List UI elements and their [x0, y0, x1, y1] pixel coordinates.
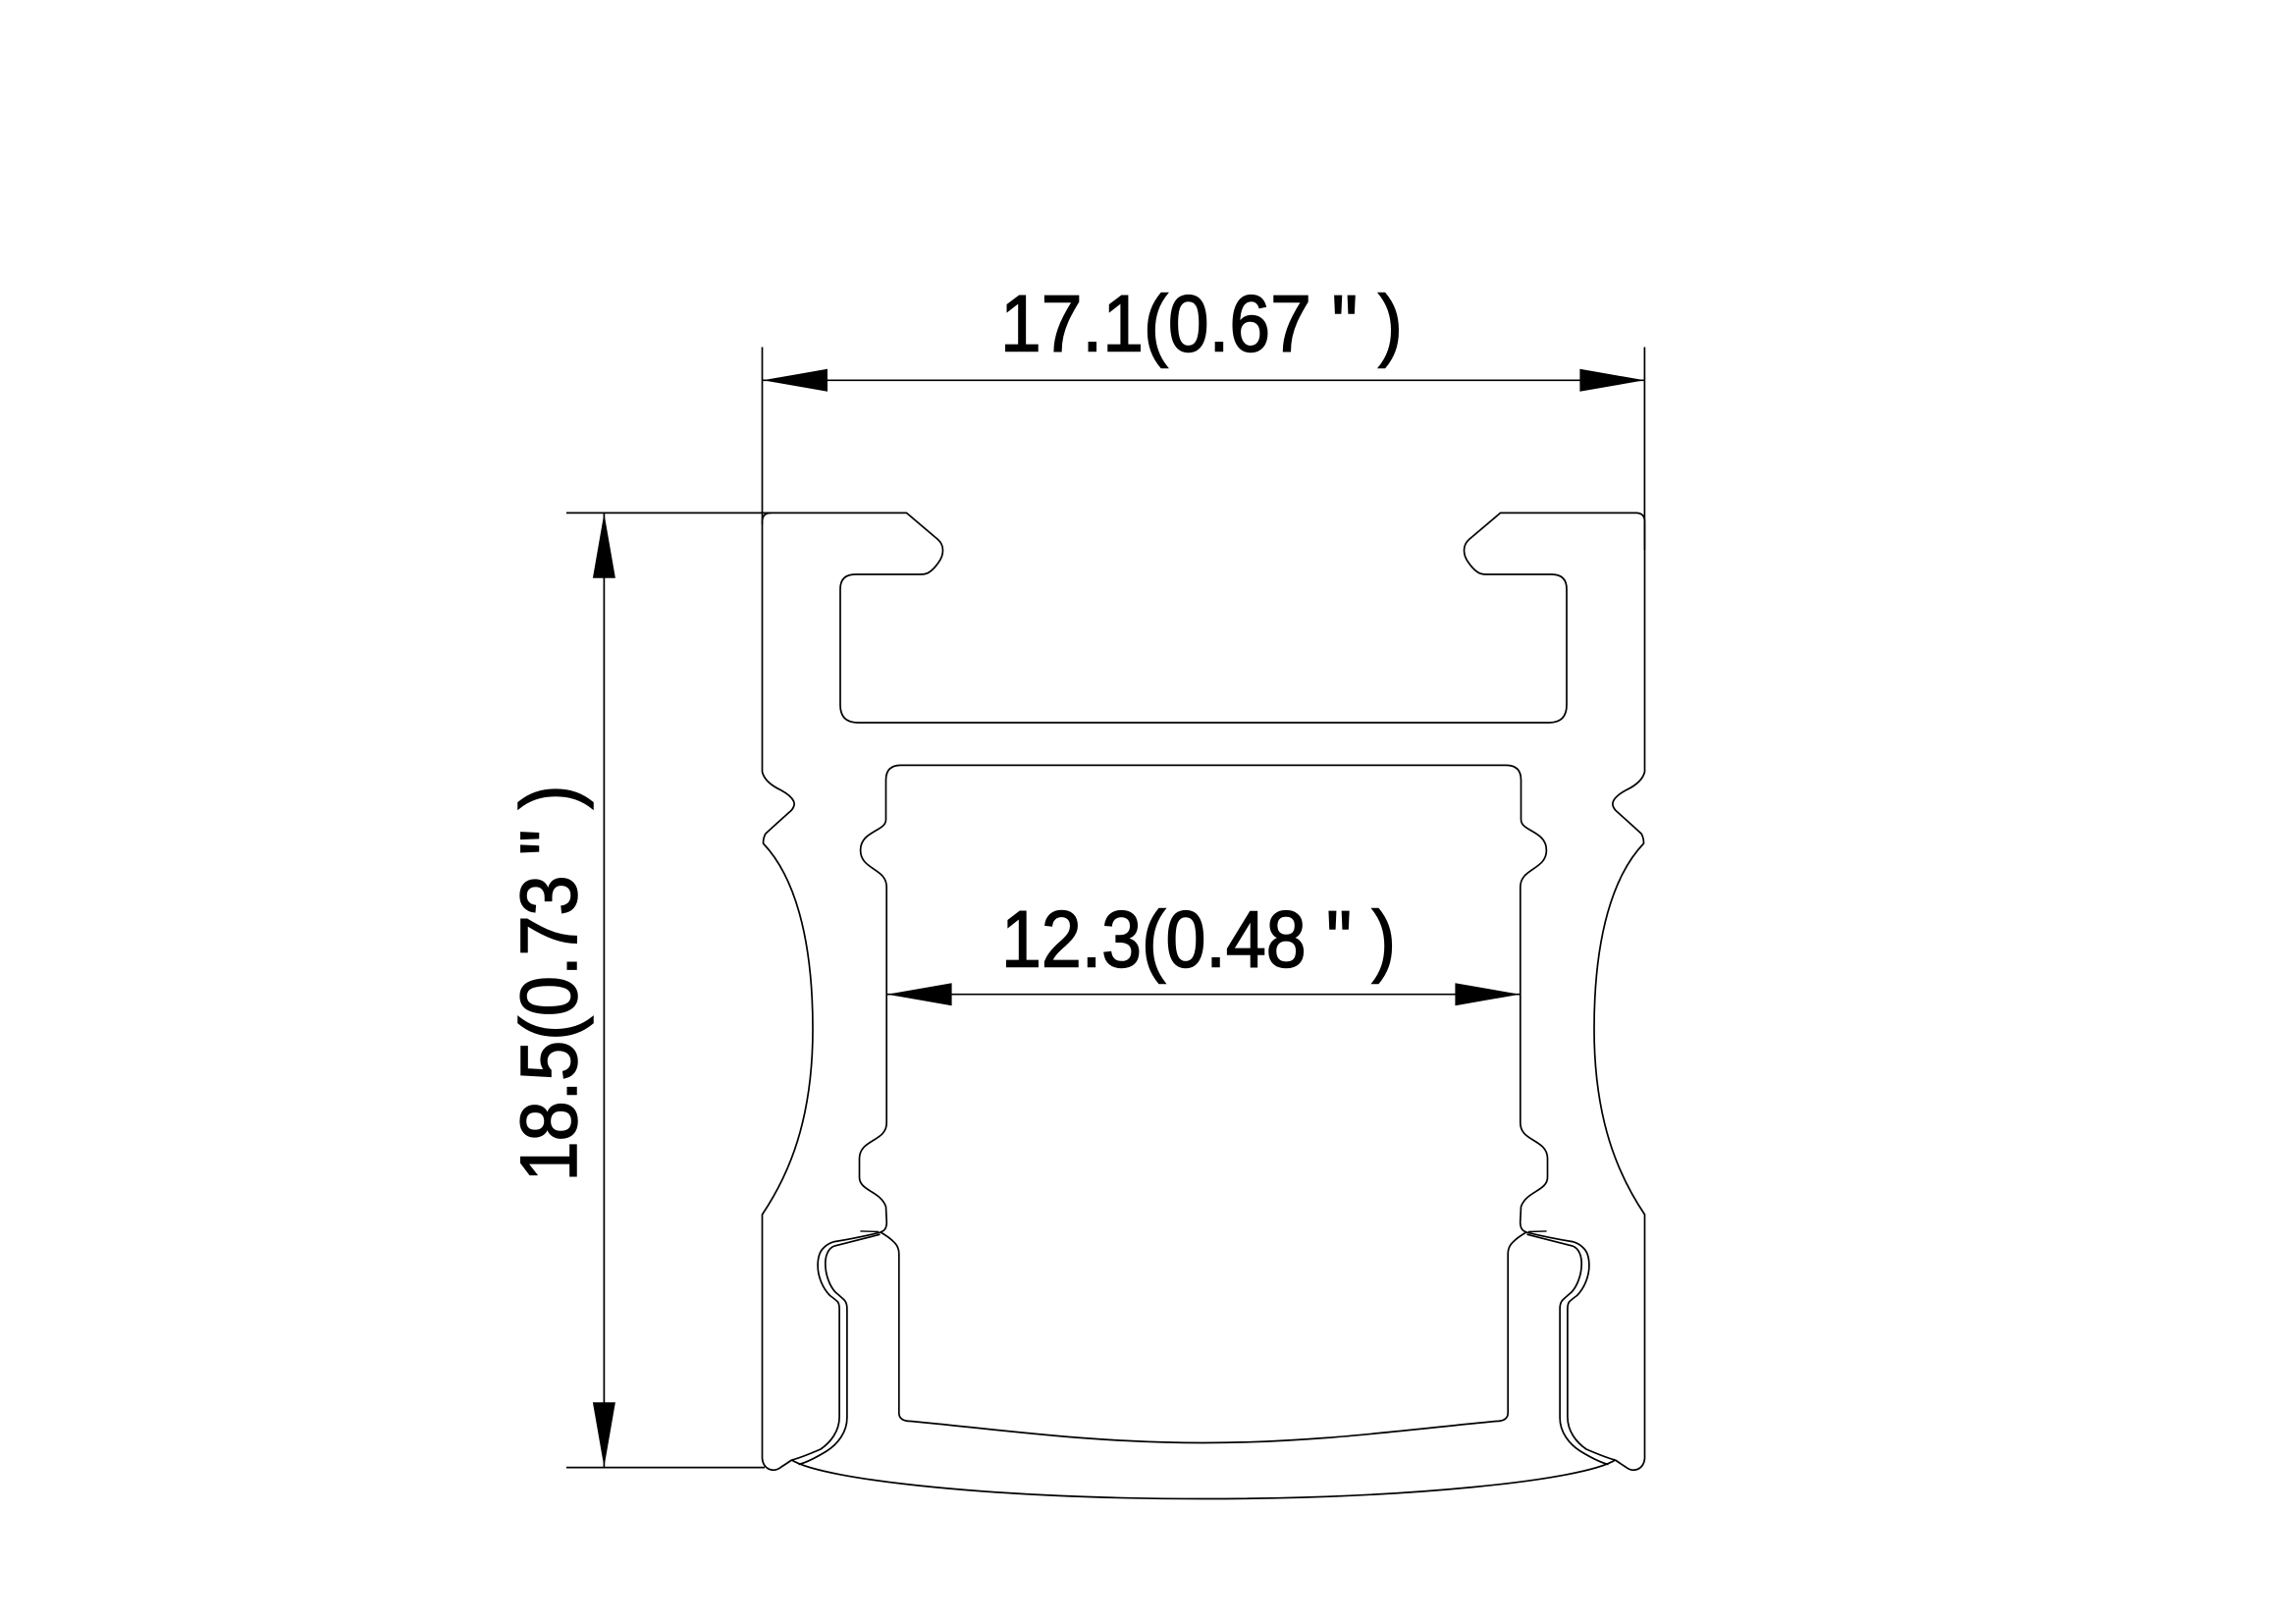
svg-text:12.3(0.48 " ): 12.3(0.48 " )	[1001, 895, 1396, 985]
svg-text:18.5(0.73 " ): 18.5(0.73 " )	[505, 785, 594, 1182]
svg-text:17.1(0.67 " ): 17.1(0.67 " )	[1000, 280, 1403, 369]
